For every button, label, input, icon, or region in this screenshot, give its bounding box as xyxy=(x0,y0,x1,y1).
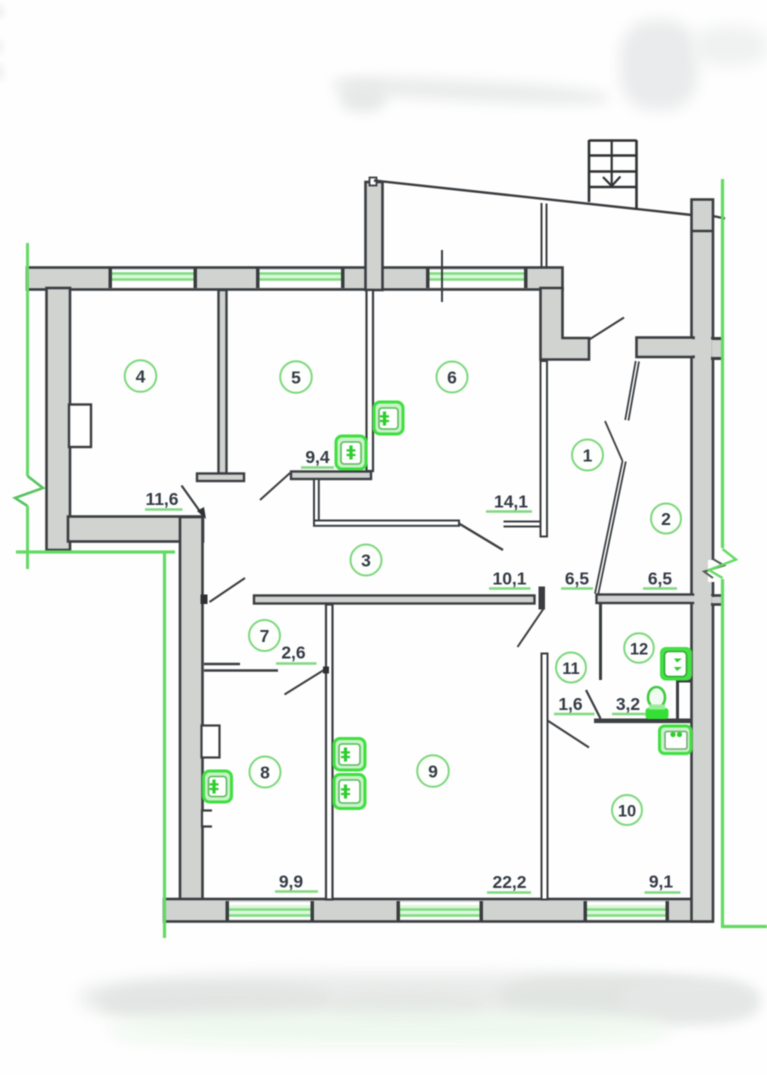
svg-text:9: 9 xyxy=(428,762,438,782)
svg-text:11,6: 11,6 xyxy=(145,489,178,509)
svg-text:9,1: 9,1 xyxy=(649,872,674,892)
svg-text:22,2: 22,2 xyxy=(492,872,526,892)
svg-text:3,2: 3,2 xyxy=(616,694,641,714)
svg-text:1: 1 xyxy=(583,446,593,466)
svg-text:6,5: 6,5 xyxy=(648,569,673,589)
svg-text:9,9: 9,9 xyxy=(279,872,304,892)
svg-text:2,6: 2,6 xyxy=(281,643,306,663)
svg-text:4: 4 xyxy=(136,367,146,387)
svg-text:9,4: 9,4 xyxy=(305,447,330,467)
svg-text:10,1: 10,1 xyxy=(492,569,526,589)
svg-text:8: 8 xyxy=(260,763,270,783)
svg-text:5: 5 xyxy=(291,368,301,388)
svg-text:7: 7 xyxy=(260,626,270,646)
svg-text:2: 2 xyxy=(661,509,671,529)
svg-text:11: 11 xyxy=(562,660,579,678)
svg-text:3: 3 xyxy=(361,551,371,571)
svg-text:10: 10 xyxy=(618,803,636,821)
svg-text:12: 12 xyxy=(630,641,648,659)
svg-text:1,6: 1,6 xyxy=(558,694,583,714)
svg-text:6: 6 xyxy=(447,368,457,388)
svg-text:14,1: 14,1 xyxy=(494,492,528,512)
svg-text:6,5: 6,5 xyxy=(565,569,590,589)
